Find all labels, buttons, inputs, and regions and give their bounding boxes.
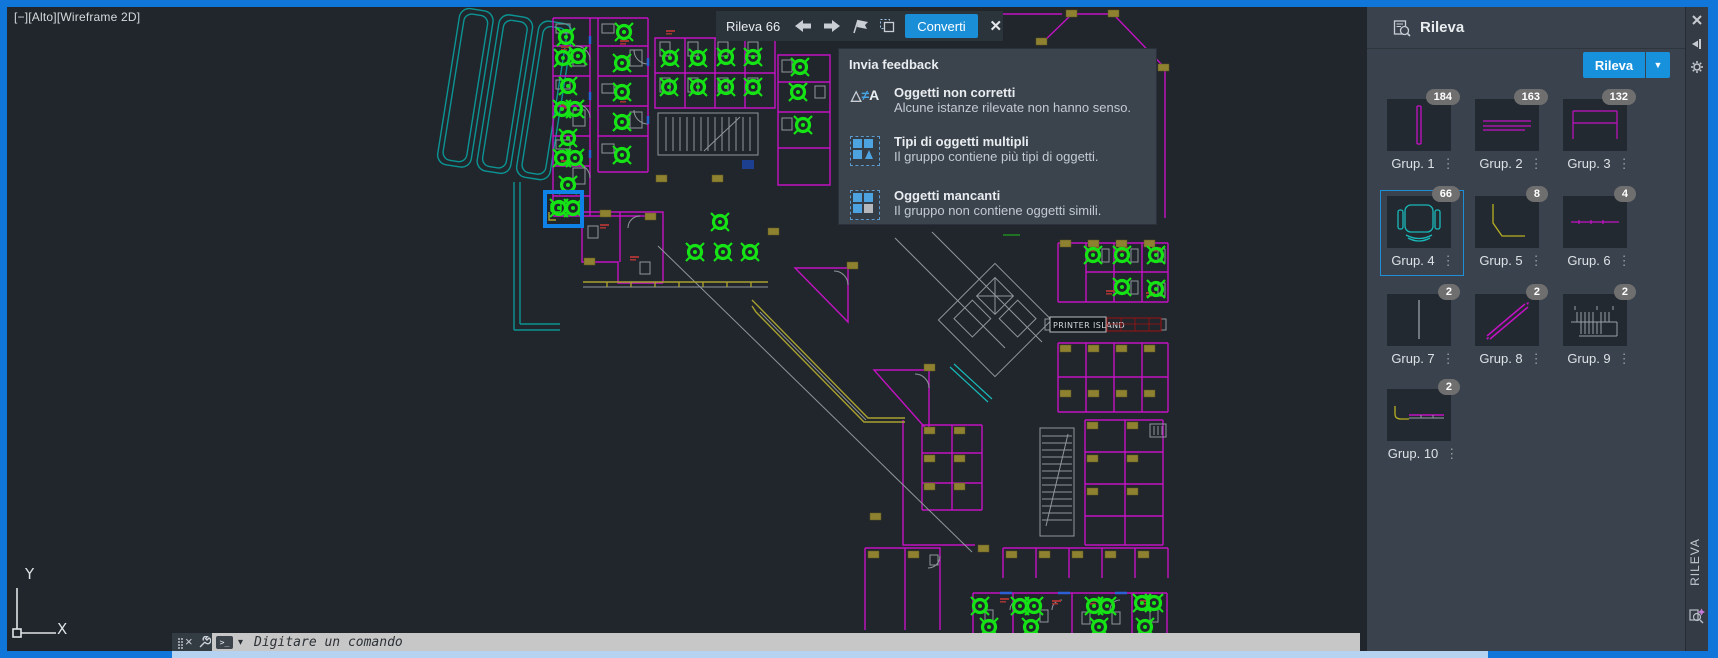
group-menu-dots[interactable]: ⋮ [1530, 159, 1543, 169]
autocad-window: { "viewport": { "label": "[−][Alto][Wire… [0, 0, 1718, 658]
count-badge: 4 [1614, 186, 1636, 202]
feedback-item-desc: Il gruppo contiene più tipi di oggetti. [894, 149, 1099, 164]
triangle-notequal-a-icon: △≠A [851, 87, 880, 104]
missing-objects-icon [850, 190, 880, 220]
group-card-1[interactable]: 184 Grup. 1⋮ [1380, 93, 1464, 179]
ucs-icon: Y X [13, 565, 67, 638]
group-menu-dots[interactable]: ⋮ [1442, 256, 1455, 266]
group-card-3[interactable]: 132 Grup. 3⋮ [1556, 93, 1640, 179]
multiple-object-types-icon [850, 136, 880, 166]
feedback-item-incorrect[interactable]: △≠A Oggetti non corretti Alcune istanze … [847, 85, 1144, 115]
multi-select-icon[interactable] [878, 15, 896, 37]
back-arrow-icon[interactable] [793, 15, 813, 37]
terminal-icon: >_ [216, 636, 233, 649]
count-badge: 2 [1438, 379, 1460, 395]
flag-icon[interactable] [851, 15, 869, 37]
group-label: Grup. 9 [1567, 351, 1610, 366]
dropdown-caret-icon[interactable]: ▾ [238, 637, 243, 648]
palette-tab-rileva[interactable]: RILEVA [1660, 527, 1718, 597]
floorplan-drawing: PRINTER ISLAND Y X [7, 7, 1367, 651]
group-card-6[interactable]: 4 Grup. 6⋮ [1556, 190, 1640, 276]
detect-toolbar-title: Rileva 66 [726, 19, 780, 34]
group-label: Grup. 1 [1391, 156, 1434, 171]
group-thumbnail[interactable] [1475, 196, 1539, 248]
group-menu-dots[interactable]: ⋮ [1618, 354, 1631, 364]
count-badge: 163 [1514, 89, 1548, 105]
close-icon[interactable]: × [185, 633, 193, 651]
group-card-2[interactable]: 163 Grup. 2⋮ [1468, 93, 1552, 179]
feedback-item-desc: Alcune istanze rilevate non hanno senso. [894, 100, 1131, 115]
group-label: Grup. 6 [1567, 253, 1610, 268]
convert-button[interactable]: Converti [905, 14, 977, 38]
group-thumbnail[interactable] [1387, 196, 1451, 248]
wrench-icon[interactable] [198, 636, 211, 649]
group-thumbnail[interactable] [1563, 196, 1627, 248]
count-badge: 2 [1438, 284, 1460, 300]
group-thumbnail[interactable] [1387, 389, 1451, 441]
feedback-item-title: Tipi di oggetti multipli [894, 134, 1099, 149]
count-badge: 8 [1526, 186, 1548, 202]
horizontal-scrollbar[interactable] [172, 651, 1488, 658]
group-menu-dots[interactable]: ⋮ [1530, 256, 1543, 266]
group-menu-dots[interactable]: ⋮ [1618, 159, 1631, 169]
group-thumbnail[interactable] [1563, 99, 1627, 151]
feedback-item-desc: Il gruppo non contiene oggetti simili. [894, 203, 1101, 218]
group-card-8[interactable]: 2 Grup. 8⋮ [1468, 288, 1552, 374]
command-input[interactable]: >_ ▾ Digitare un comando [212, 633, 1360, 651]
group-thumbnail[interactable] [1387, 99, 1451, 151]
group-label: Grup. 5 [1479, 253, 1522, 268]
palette-side-strip: RILEVA [1685, 7, 1708, 651]
printer-island-label: PRINTER ISLAND [1053, 321, 1125, 330]
group-menu-dots[interactable]: ⋮ [1445, 449, 1458, 459]
group-card-9[interactable]: 2 Grup. 9⋮ [1556, 288, 1640, 374]
count-badge: 184 [1426, 89, 1460, 105]
command-bar-grip[interactable]: × [172, 633, 212, 651]
group-card-4[interactable]: 66 Grup. 4⋮ [1380, 190, 1464, 276]
group-label: Grup. 3 [1567, 156, 1610, 171]
detect-document-icon [1393, 19, 1411, 37]
ucs-x-label: X [57, 620, 67, 638]
ucs-y-label: Y [24, 565, 35, 583]
count-badge: 66 [1432, 186, 1460, 202]
drawing-area[interactable]: PRINTER ISLAND Y X [−][Alto][Wireframe 2… [7, 7, 1367, 651]
feedback-item-missing[interactable]: Oggetti mancanti Il gruppo non contiene … [847, 188, 1144, 220]
detect-split-button[interactable]: Rileva ▼ [1583, 52, 1670, 78]
forward-arrow-icon[interactable] [822, 15, 842, 37]
command-prompt-text: Digitare un comando [254, 635, 403, 650]
feedback-title: Invia feedback [849, 57, 1144, 72]
feedback-item-title: Oggetti non corretti [894, 85, 1131, 100]
detect-button-caret[interactable]: ▼ [1646, 52, 1670, 78]
group-card-5[interactable]: 8 Grup. 5⋮ [1468, 190, 1552, 276]
properties-gear-icon[interactable] [1690, 60, 1704, 74]
detect-toolbar: Rileva 66 Converti ✕ [716, 11, 1003, 41]
close-icon[interactable] [1690, 13, 1704, 27]
group-card-10[interactable]: 2 Grup. 10⋮ [1380, 383, 1464, 469]
group-thumbnail[interactable] [1563, 294, 1627, 346]
group-label: Grup. 7 [1391, 351, 1434, 366]
detect-button[interactable]: Rileva [1583, 52, 1645, 78]
feedback-item-multiple-types[interactable]: Tipi di oggetti multipli Il gruppo conti… [847, 134, 1144, 166]
count-badge: 132 [1602, 89, 1636, 105]
feedback-panel: Invia feedback △≠A Oggetti non corretti … [838, 48, 1157, 225]
group-menu-dots[interactable]: ⋮ [1442, 354, 1455, 364]
navy-block [742, 160, 754, 169]
feedback-item-title: Oggetti mancanti [894, 188, 1101, 203]
viewport-controls[interactable]: [−][Alto][Wireframe 2D] [14, 10, 140, 24]
detect-sparkle-icon[interactable] [1688, 607, 1706, 625]
group-label: Grup. 4 [1391, 253, 1434, 268]
group-menu-dots[interactable]: ⋮ [1442, 159, 1455, 169]
railings-olive [583, 282, 905, 422]
group-menu-dots[interactable]: ⋮ [1530, 354, 1543, 364]
printer-island: PRINTER ISLAND [1050, 317, 1161, 332]
cyan-diagonal [950, 364, 992, 402]
palette-header: Rileva [1367, 7, 1685, 49]
detect-palette: Rileva Rileva ▼ 184 Grup. 1⋮ 163 Grup. 2… [1367, 7, 1685, 651]
command-bar: × >_ ▾ Digitare un comando [172, 633, 1360, 651]
selection-highlight-box [545, 192, 582, 226]
autohide-pin-icon[interactable] [1690, 37, 1704, 51]
group-thumbnail[interactable] [1475, 99, 1539, 151]
group-thumbnail[interactable] [1387, 294, 1451, 346]
group-label: Grup. 2 [1479, 156, 1522, 171]
close-icon[interactable]: ✕ [989, 15, 1003, 37]
count-badge: 2 [1526, 284, 1548, 300]
palette-title: Rileva [1420, 19, 1464, 36]
group-card-7[interactable]: 2 Grup. 7⋮ [1380, 288, 1464, 374]
group-thumbnail[interactable] [1475, 294, 1539, 346]
count-badge: 2 [1614, 284, 1636, 300]
drag-grip-icon [178, 641, 180, 643]
group-menu-dots[interactable]: ⋮ [1618, 256, 1631, 266]
group-label: Grup. 8 [1479, 351, 1522, 366]
group-label: Grup. 10 [1388, 446, 1439, 461]
